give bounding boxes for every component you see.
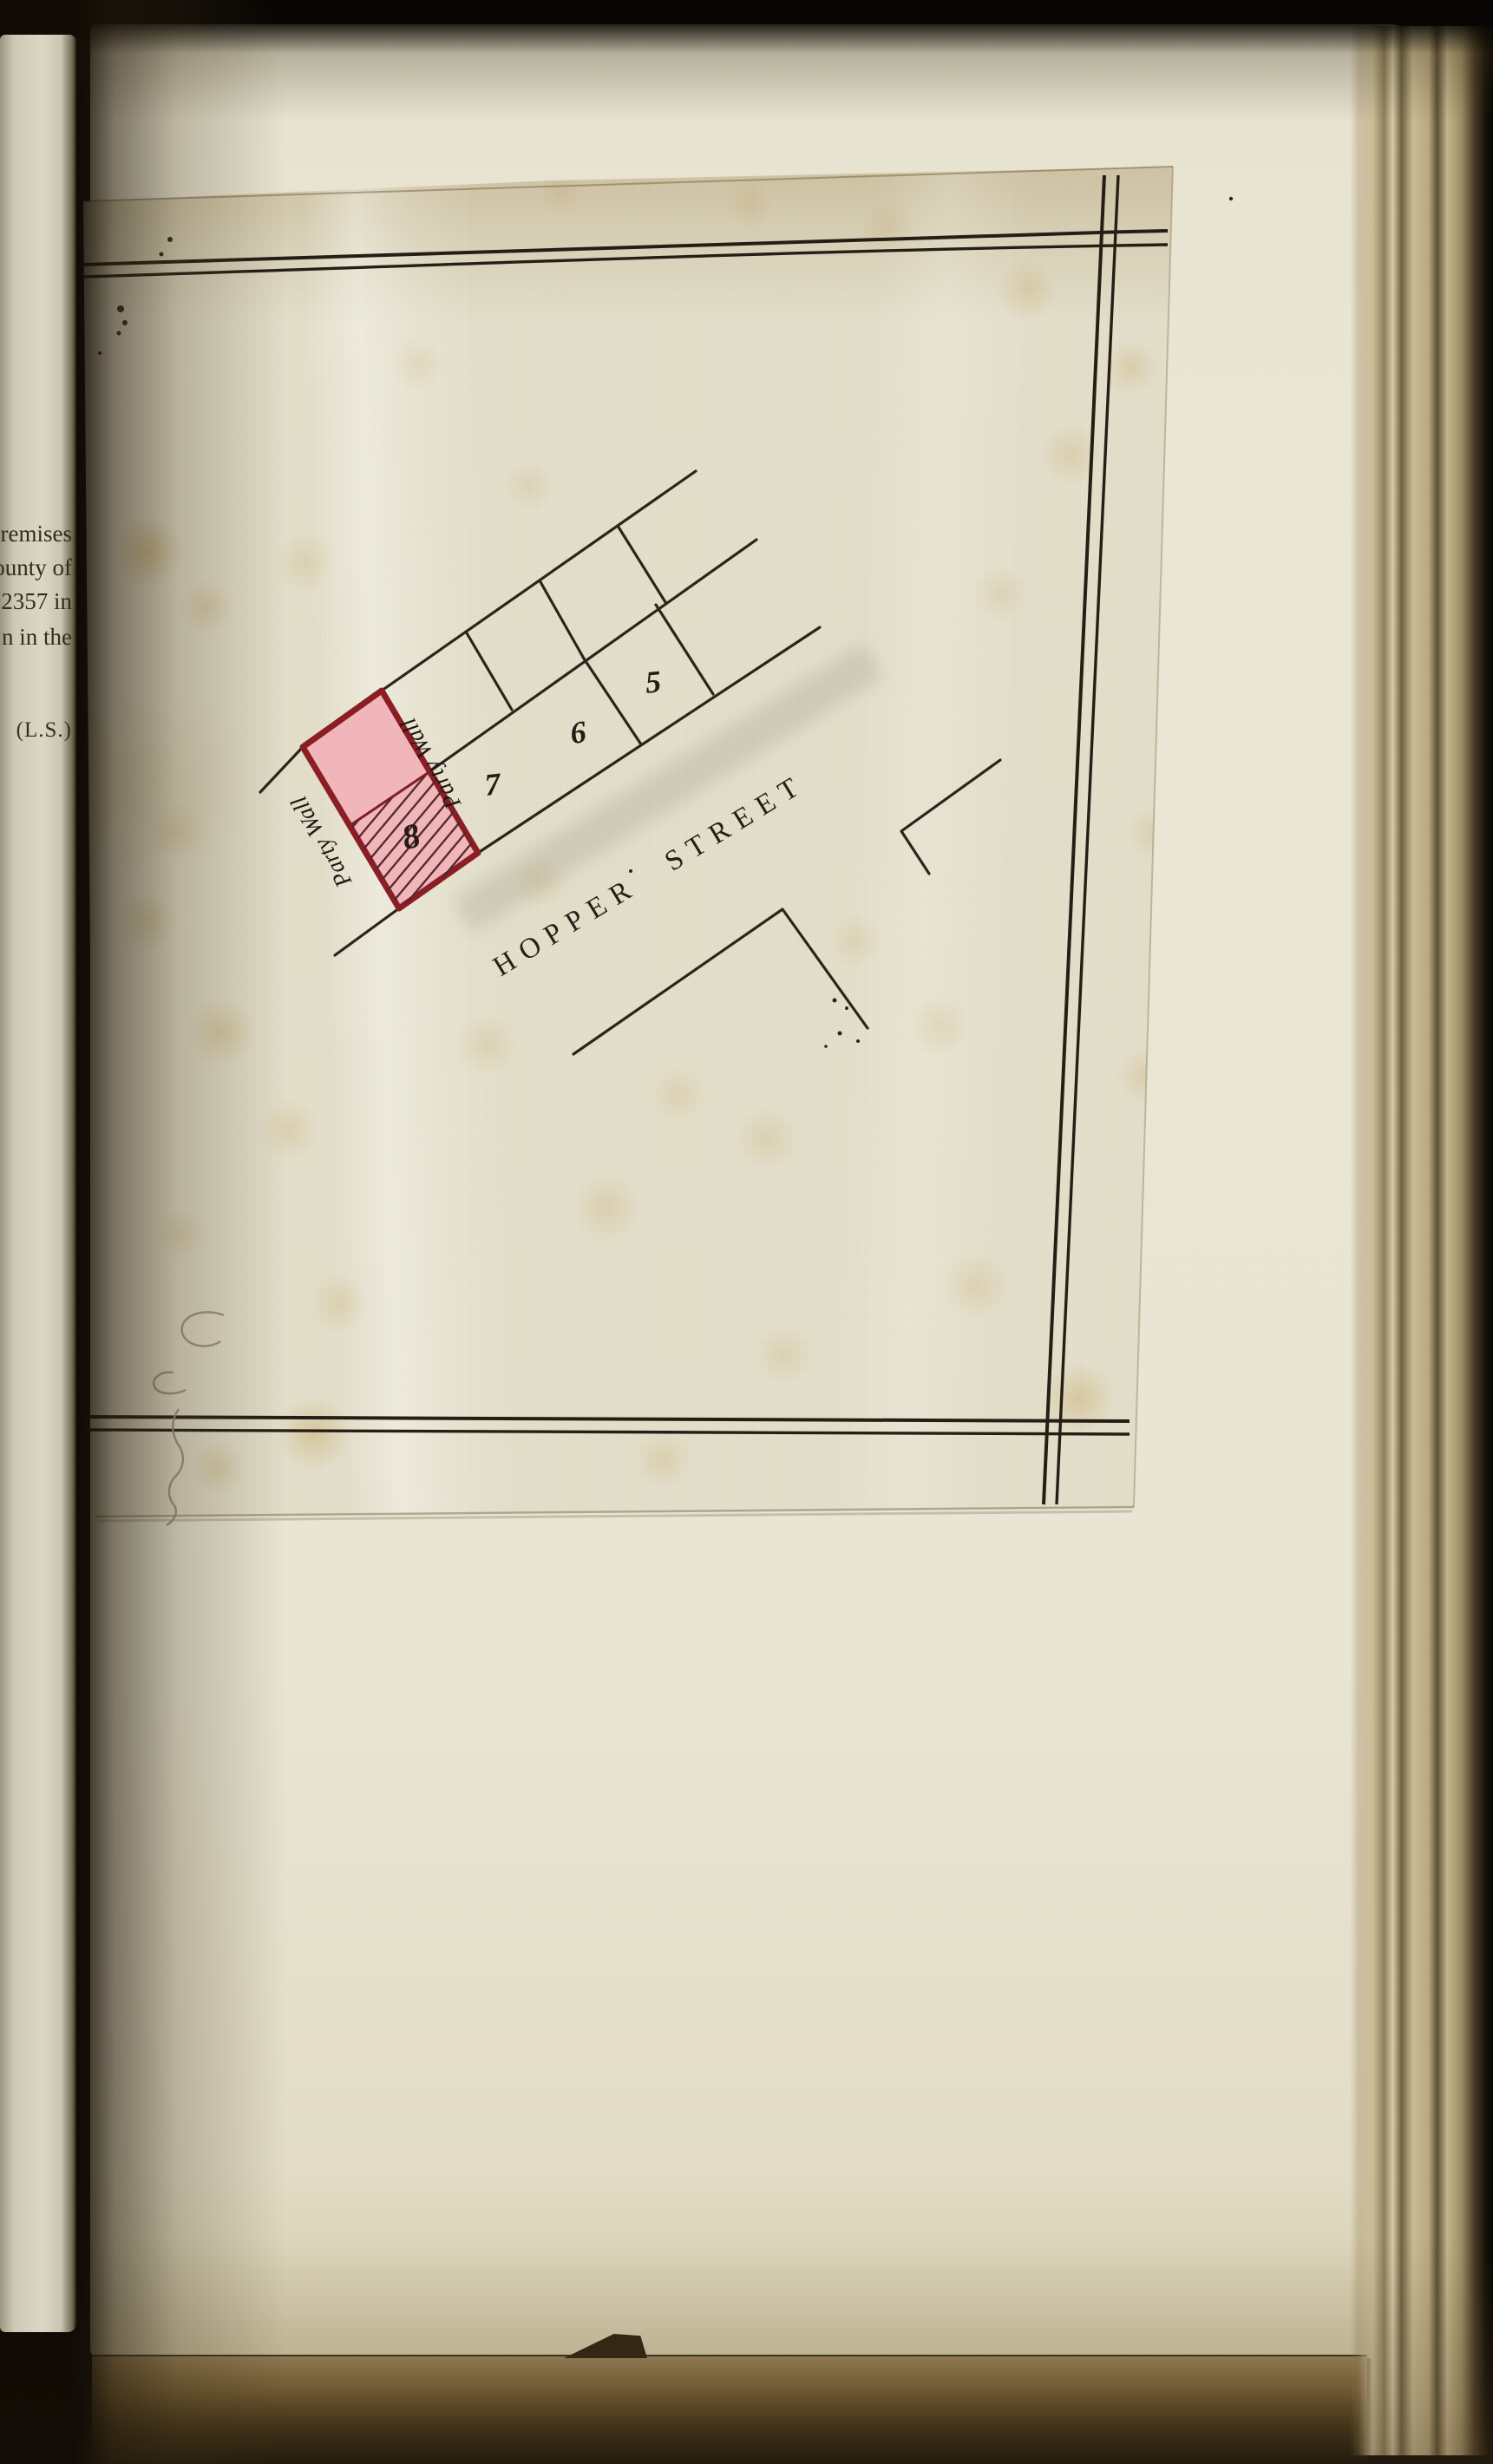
sheet-edges (83, 167, 1173, 1521)
facing-page-edge: premises ounty of 2357 in n in the (L.S.… (0, 35, 76, 2332)
ink-specks (98, 197, 1233, 1048)
plan-border (84, 175, 1168, 1504)
south-corner (573, 909, 868, 1054)
seal-mark: (L.S.) (16, 719, 72, 741)
border-bottom-line-2 (87, 1430, 1130, 1434)
deed-text-fragment: ounty of (0, 556, 72, 580)
scanned-book-page: 5 6 7 8 Party Wall Party Wall HOPPER STR… (0, 0, 1493, 2464)
plot-number-6: 6 (568, 714, 588, 750)
north-corner (901, 760, 1000, 874)
street-frontage-left (335, 908, 399, 955)
border-bottom-line-1 (87, 1417, 1130, 1421)
plot-number-7: 7 (483, 766, 504, 803)
back-row-divider-1 (466, 632, 512, 710)
street-name-word-1: HOPPER (488, 870, 644, 983)
deed-plan-drawing: 5 6 7 8 Party Wall Party Wall HOPPER STR… (0, 0, 1493, 2464)
front-divider-7-6 (584, 659, 641, 744)
block-back-line-left (260, 747, 303, 792)
deed-text-fragment: n in the (2, 626, 72, 649)
border-right-line-1 (1044, 175, 1104, 1504)
deed-text-fragment: premises (0, 522, 72, 546)
deed-text-fragment: 2357 in (1, 590, 72, 613)
plot-number-5: 5 (644, 664, 662, 699)
back-row-divider-3 (618, 526, 665, 602)
street-name-word-2: STREET (659, 768, 812, 878)
front-divider-6-5 (656, 605, 713, 694)
border-right-line-2 (1057, 175, 1118, 1504)
street-name: HOPPER STREET (488, 768, 812, 983)
back-row-divider-2 (540, 580, 584, 659)
